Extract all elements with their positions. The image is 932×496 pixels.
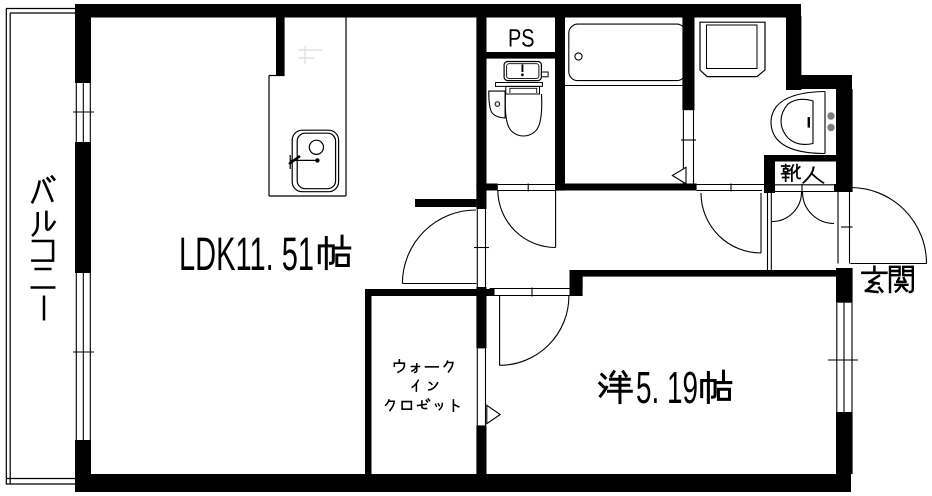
svg-text:LDK11. 51: LDK11. 51 [179,227,314,280]
svg-text:PS: PS [508,24,535,52]
svg-text:5. 19: 5. 19 [636,362,698,413]
